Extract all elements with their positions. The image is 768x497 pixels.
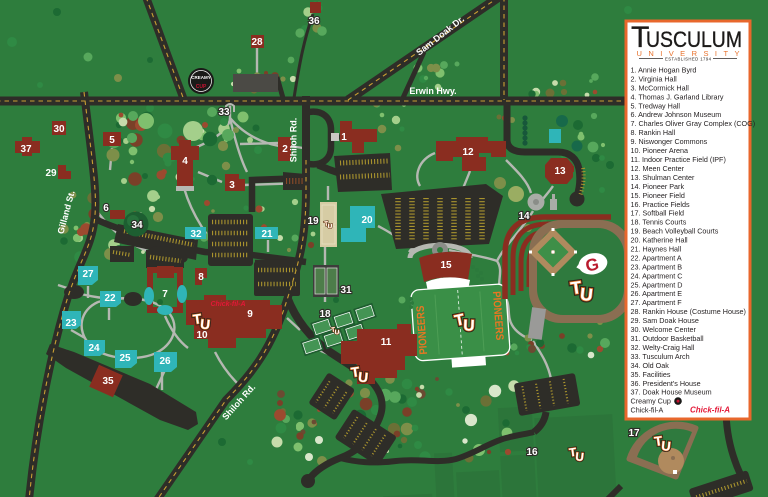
svg-text:18: 18 — [319, 309, 331, 320]
svg-text:2. Virginia Hall: 2. Virginia Hall — [631, 75, 678, 84]
svg-text:27. Apartment F: 27. Apartment F — [631, 298, 683, 307]
svg-text:7: 7 — [162, 289, 168, 300]
svg-text:5. Tredway Hall: 5. Tredway Hall — [631, 101, 681, 110]
svg-text:7. Charles Oliver Gray Complex: 7. Charles Oliver Gray Complex (COG) — [631, 119, 756, 128]
svg-text:2: 2 — [282, 144, 288, 155]
svg-text:36: 36 — [308, 16, 320, 27]
svg-text:30: 30 — [53, 124, 65, 135]
svg-text:8. Rankin Hall: 8. Rankin Hall — [631, 128, 676, 137]
svg-text:1: 1 — [341, 132, 347, 143]
svg-text:12. Meen Center: 12. Meen Center — [631, 164, 685, 173]
svg-text:37: 37 — [20, 144, 32, 155]
svg-text:ESTABLISHED 1794: ESTABLISHED 1794 — [665, 57, 712, 62]
svg-text:21. Haynes Hall: 21. Haynes Hall — [631, 245, 682, 254]
svg-text:19. Beach Volleyball Courts: 19. Beach Volleyball Courts — [631, 227, 719, 236]
svg-text:18. Tennis Courts: 18. Tennis Courts — [631, 218, 687, 227]
svg-text:13. Shulman Center: 13. Shulman Center — [631, 173, 696, 182]
svg-text:21: 21 — [261, 229, 273, 240]
svg-text:3. McCormick Hall: 3. McCormick Hall — [631, 83, 690, 92]
svg-text:1. Annie Hogan Byrd: 1. Annie Hogan Byrd — [631, 66, 697, 75]
svg-text:4. Thomas J. Garland Library: 4. Thomas J. Garland Library — [631, 92, 724, 101]
svg-text:32. Welty-Craig Hall: 32. Welty-Craig Hall — [631, 343, 695, 352]
svg-text:Chick-fil-A: Chick-fil-A — [631, 406, 664, 415]
svg-text:CUP: CUP — [196, 84, 207, 90]
svg-text:9. Niswonger Commons: 9. Niswonger Commons — [631, 137, 708, 146]
svg-text:14: 14 — [518, 211, 530, 222]
svg-text:Erwin Hwy.: Erwin Hwy. — [409, 86, 456, 96]
svg-text:Chick-fil-A: Chick-fil-A — [211, 301, 246, 308]
svg-text:6: 6 — [103, 203, 109, 214]
svg-text:23. Apartment B: 23. Apartment B — [631, 262, 683, 271]
svg-text:32: 32 — [190, 229, 202, 240]
svg-text:34. Old Oak: 34. Old Oak — [631, 361, 670, 370]
svg-text:33. Tusculum Arch: 33. Tusculum Arch — [631, 352, 690, 361]
svg-text:35. Facilities: 35. Facilities — [631, 370, 671, 379]
svg-text:25. Apartment D: 25. Apartment D — [631, 280, 683, 289]
svg-text:23: 23 — [65, 318, 77, 329]
svg-text:29. Sam Doak House: 29. Sam Doak House — [631, 316, 699, 325]
svg-text:26. Apartment E: 26. Apartment E — [631, 289, 683, 298]
svg-text:34: 34 — [131, 220, 143, 231]
svg-text:22. Apartment A: 22. Apartment A — [631, 253, 682, 262]
svg-text:31: 31 — [340, 285, 352, 296]
svg-text:3: 3 — [229, 180, 235, 191]
svg-text:25: 25 — [119, 353, 131, 364]
svg-text:Shiloh Rd.: Shiloh Rd. — [289, 118, 299, 163]
svg-text:28. Rankin House (Costume Hous: 28. Rankin House (Costume House) — [631, 307, 746, 316]
svg-text:19: 19 — [307, 216, 319, 227]
svg-text:12: 12 — [462, 147, 474, 158]
svg-text:14. Pioneer Park: 14. Pioneer Park — [631, 182, 685, 191]
svg-text:5: 5 — [109, 135, 115, 146]
svg-text:26: 26 — [159, 356, 171, 367]
svg-text:15: 15 — [440, 260, 452, 271]
svg-text:35: 35 — [102, 376, 114, 387]
svg-text:37. Doak House Museum: 37. Doak House Museum — [631, 388, 712, 397]
svg-text:31. Outdoor Basketball: 31. Outdoor Basketball — [631, 334, 705, 343]
svg-text:17: 17 — [628, 428, 640, 439]
svg-text:8: 8 — [198, 272, 204, 283]
svg-text:CREAMY: CREAMY — [191, 75, 211, 80]
svg-text:4: 4 — [182, 156, 188, 167]
svg-text:Creamy Cup: Creamy Cup — [631, 397, 671, 406]
svg-text:17. Softball Field: 17. Softball Field — [631, 209, 685, 218]
svg-text:20: 20 — [361, 215, 373, 226]
svg-text:22: 22 — [104, 293, 116, 304]
svg-text:20. Katherine Hall: 20. Katherine Hall — [631, 236, 689, 245]
svg-text:13: 13 — [554, 166, 566, 177]
svg-text:15. Pioneer Field: 15. Pioneer Field — [631, 191, 685, 200]
svg-text:28: 28 — [251, 37, 263, 48]
svg-text:36. President's House: 36. President's House — [631, 379, 701, 388]
svg-text:10. Pioneer Arena: 10. Pioneer Arena — [631, 146, 689, 155]
svg-text:33: 33 — [218, 107, 230, 118]
svg-text:30. Welcome Center: 30. Welcome Center — [631, 325, 697, 334]
svg-text:11. Indoor Practice Field (IPF: 11. Indoor Practice Field (IPF) — [631, 155, 726, 164]
svg-text:Chick-fil-A: Chick-fil-A — [690, 406, 730, 415]
svg-text:9: 9 — [247, 309, 253, 320]
svg-text:16. Practice Fields: 16. Practice Fields — [631, 200, 691, 209]
svg-text:6. Andrew Johnson Museum: 6. Andrew Johnson Museum — [631, 110, 722, 119]
svg-text:27: 27 — [82, 269, 94, 280]
svg-text:11: 11 — [381, 337, 392, 348]
svg-text:24: 24 — [88, 343, 100, 354]
svg-text:24. Apartment C: 24. Apartment C — [631, 271, 683, 280]
svg-text:16: 16 — [526, 447, 538, 458]
svg-text:29: 29 — [45, 168, 57, 179]
